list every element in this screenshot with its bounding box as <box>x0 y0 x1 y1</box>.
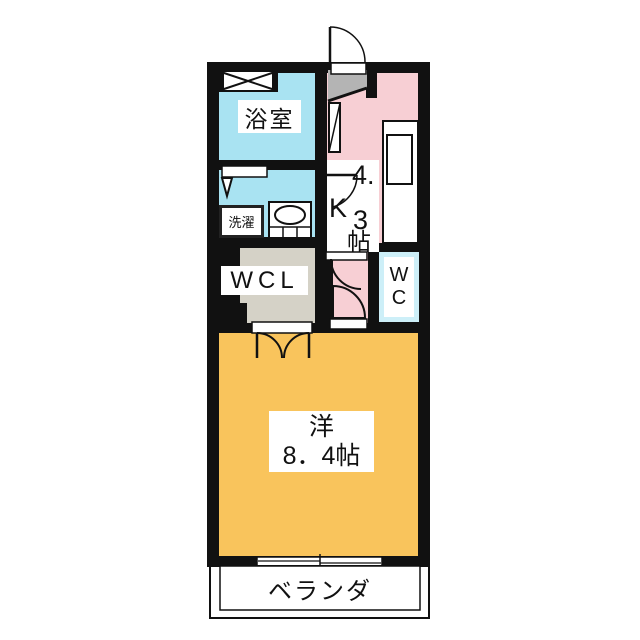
bathroom-label: 浴室 <box>238 100 301 133</box>
floorplan-drawing <box>0 0 640 640</box>
entrance-door-arc <box>330 27 365 62</box>
kitchen-label-part1: 4. <box>352 162 375 189</box>
wall-bath-kitchen <box>315 73 327 247</box>
closet-label: WCL <box>221 266 308 295</box>
main-room-label-line1: 洋 <box>309 413 334 442</box>
closet-door-sill <box>252 322 312 333</box>
kitchen-sink <box>387 135 412 184</box>
bathroom-door-sill <box>222 166 267 177</box>
wc-label-line2: C <box>392 287 406 310</box>
entrance-sill <box>331 63 366 74</box>
laundry-label: 洗濯 <box>219 205 264 238</box>
washbasin-sink <box>275 206 305 224</box>
storage-box-side <box>272 71 277 91</box>
main-room-label-line2: 8．4帖 <box>283 442 361 471</box>
wc-label: W C <box>379 252 419 322</box>
wc-label-line1: W <box>390 264 409 287</box>
kitchen-label-part4: 帖 <box>347 231 371 255</box>
veranda-label: ベランダ <box>220 568 420 608</box>
kitchen-label-part2: K <box>329 195 347 222</box>
wall-entry <box>366 62 377 98</box>
storage-box-side <box>219 71 224 91</box>
floorplan: 浴室 洗濯 4. K 3 帖 WCL W C 洋 8．4帖 ベランダ <box>0 0 640 640</box>
corridor-sill-lower <box>330 319 367 329</box>
main-room-label: 洋 8．4帖 <box>269 411 374 472</box>
